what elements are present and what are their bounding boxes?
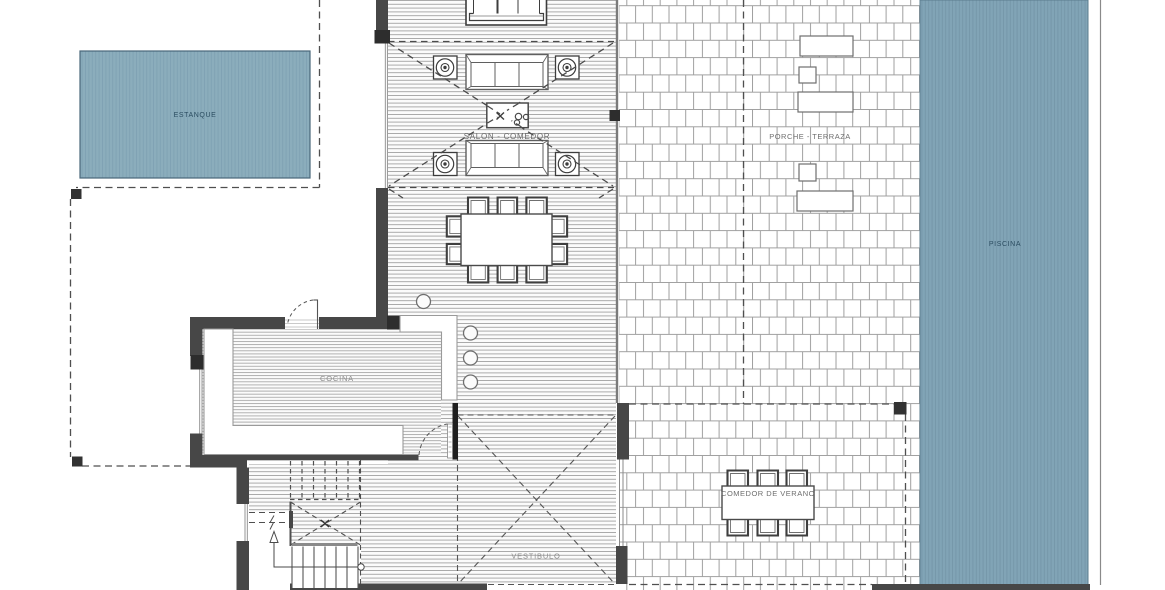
svg-text:VESTIBULO: VESTIBULO bbox=[511, 552, 560, 561]
svg-text:PORCHE - TERRAZA: PORCHE - TERRAZA bbox=[769, 132, 851, 141]
svg-text:COMEDOR DE VERANO: COMEDOR DE VERANO bbox=[721, 489, 815, 498]
svg-text:ESTANQUE: ESTANQUE bbox=[174, 112, 217, 119]
svg-text:SALON - COMEDOR: SALON - COMEDOR bbox=[464, 132, 551, 141]
svg-text:PISCINA: PISCINA bbox=[989, 241, 1021, 248]
svg-text:COCINA: COCINA bbox=[320, 374, 354, 383]
